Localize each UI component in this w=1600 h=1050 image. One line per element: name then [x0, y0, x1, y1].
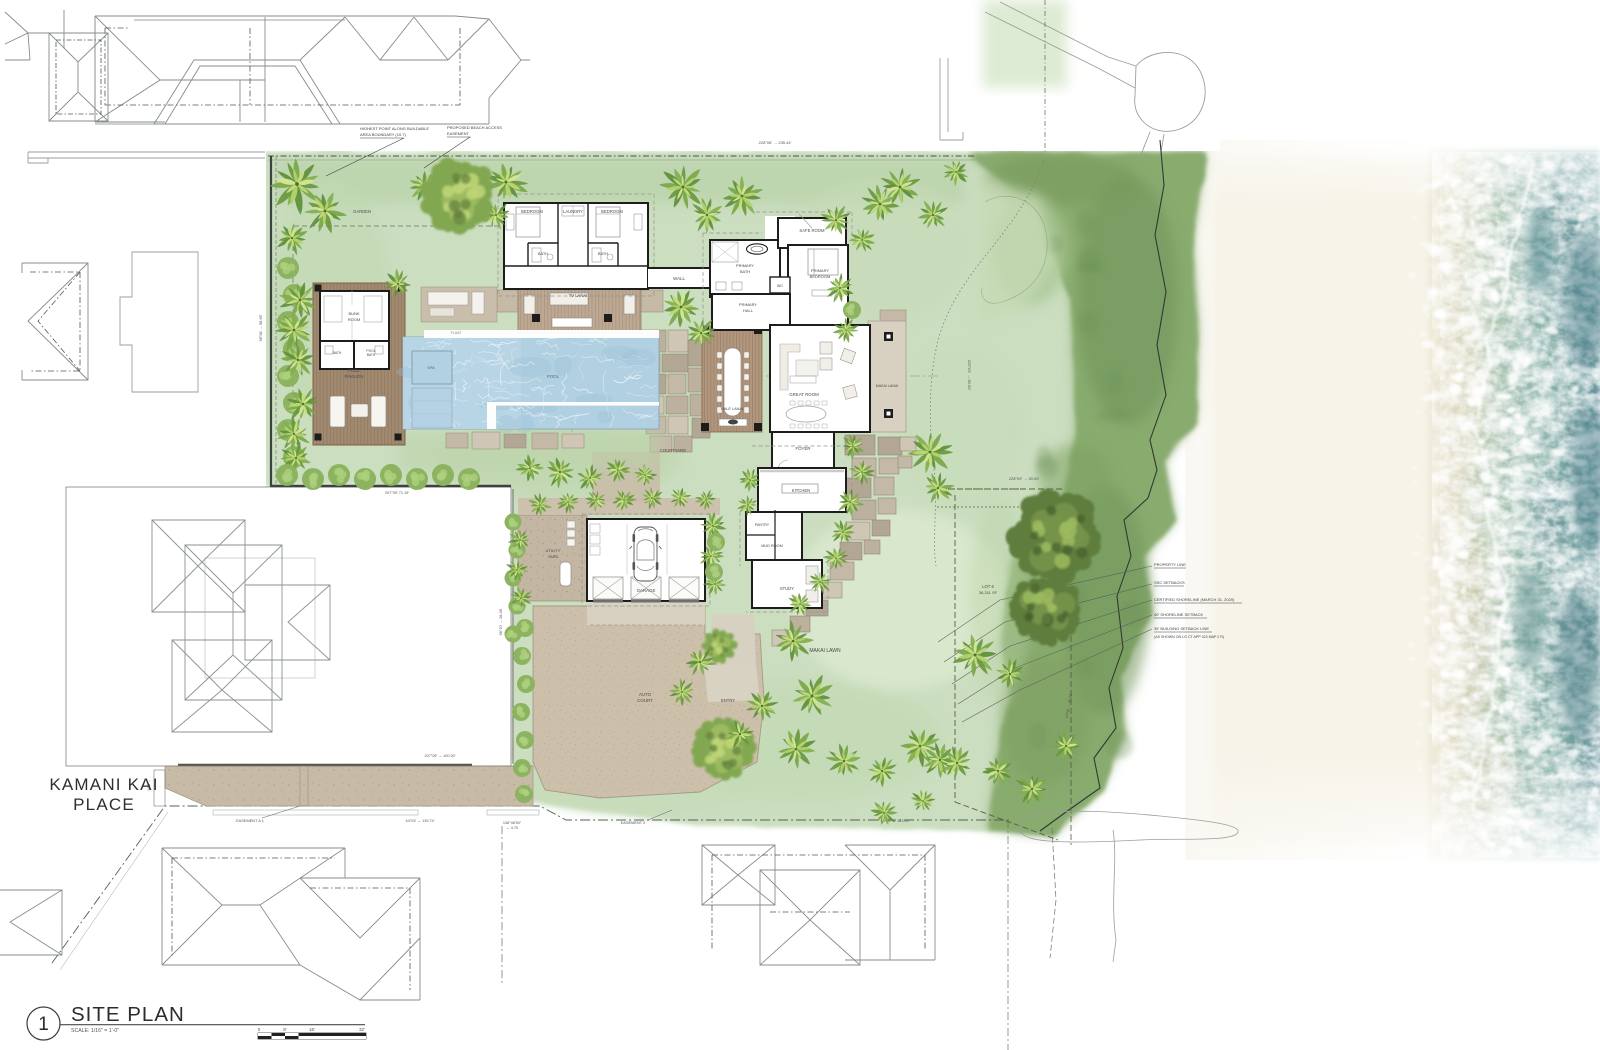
svg-text:BEDROOM: BEDROOM [601, 209, 623, 214]
svg-text:LOT 6: LOT 6 [982, 584, 994, 589]
svg-text:PRIMARY: PRIMARY [739, 302, 757, 307]
svg-text:HALE LANAI: HALE LANAI [721, 407, 743, 411]
svg-text:WALL: WALL [673, 276, 685, 281]
svg-text:SAFE ROOM: SAFE ROOM [799, 228, 825, 233]
svg-text:WC: WC [777, 284, 783, 288]
svg-text:KITCHEN: KITCHEN [792, 488, 810, 493]
svg-text:PROPERTY LINE: PROPERTY LINE [1154, 562, 1186, 567]
svg-text:GARAGE: GARAGE [637, 588, 656, 593]
svg-text:SPA: SPA [427, 365, 435, 370]
svg-text:35' BUILDING SETBACK LINE: 35' BUILDING SETBACK LINE [1154, 626, 1209, 631]
svg-text:POOL: POOL [348, 368, 360, 373]
svg-text:← 4.70: ← 4.70 [506, 826, 518, 830]
svg-text:228°08' → 235.44': 228°08' → 235.44' [759, 140, 792, 145]
svg-text:ENTRY: ENTRY [721, 698, 735, 703]
svg-text:207°09' 71.15': 207°09' 71.15' [385, 491, 409, 495]
svg-text:MAKAI LANAI: MAKAI LANAI [876, 384, 899, 388]
svg-text:COURTYARD: COURTYARD [660, 448, 686, 453]
svg-text:BEDROOM: BEDROOM [521, 209, 543, 214]
svg-text:STUDY: STUDY [780, 586, 794, 591]
svg-text:PRIMARY: PRIMARY [736, 263, 754, 268]
svg-text:8': 8' [283, 1027, 287, 1032]
svg-text:0: 0 [258, 1027, 261, 1032]
svg-text:BUNK: BUNK [348, 311, 359, 316]
svg-text:44°03' → 139.74': 44°03' → 139.74' [406, 819, 435, 823]
svg-text:EASEMENT 2: EASEMENT 2 [621, 820, 646, 825]
svg-text:UTILITY: UTILITY [546, 548, 561, 553]
svg-text:229°03' → 50.00': 229°03' → 50.00' [967, 360, 972, 391]
svg-text:56°10' → 28.48': 56°10' → 28.48' [499, 608, 503, 635]
svg-text:BATH: BATH [538, 251, 548, 256]
svg-text:ROOM: ROOM [348, 317, 360, 322]
svg-text:BATH: BATH [367, 353, 376, 357]
svg-text:CERTIFIED SHORELINE (MARCH 31,: CERTIFIED SHORELINE (MARCH 31, 2020) [1154, 597, 1235, 602]
svg-text:BATH: BATH [740, 269, 750, 274]
svg-text:PLACE: PLACE [73, 795, 135, 814]
svg-text:POOL: POOL [547, 374, 560, 379]
svg-text:40' SHORELINE SETBACK: 40' SHORELINE SETBACK [1154, 612, 1204, 617]
svg-text:SCALE: 1/16" = 1'-0": SCALE: 1/16" = 1'-0" [71, 1028, 119, 1034]
svg-text:COURT: COURT [637, 698, 653, 703]
svg-text:HALL: HALL [743, 308, 754, 313]
svg-text:36,311 SF: 36,311 SF [979, 590, 998, 595]
svg-text:PROPOSED BEACH ACCESS: PROPOSED BEACH ACCESS [447, 125, 502, 130]
svg-text:BATH: BATH [333, 351, 342, 355]
svg-text:SITE PLAN: SITE PLAN [71, 1003, 185, 1026]
svg-text:HIGHEST POINT ALONG BUILDABLE: HIGHEST POINT ALONG BUILDABLE [360, 126, 429, 131]
svg-text:FLOAT: FLOAT [451, 331, 462, 335]
svg-text:AUTO: AUTO [639, 692, 652, 697]
svg-text:SSC SETBACKS: SSC SETBACKS [1154, 580, 1185, 585]
svg-text:PAVILION: PAVILION [345, 374, 364, 379]
svg-text:(AS SHOWN ON LG CT APP 323 MAP: (AS SHOWN ON LG CT APP 323 MAP 2 R) [1154, 635, 1224, 639]
svg-text:EASEMENT: EASEMENT [447, 131, 470, 136]
svg-text:AREA BOUNDARY (10.7): AREA BOUNDARY (10.7) [360, 132, 407, 137]
svg-text:BATH: BATH [598, 251, 608, 256]
svg-text:TV LANAI: TV LANAI [569, 293, 588, 298]
svg-text:FOYER: FOYER [795, 446, 810, 451]
svg-text:56°56' → 98.65': 56°56' → 98.65' [259, 314, 263, 341]
svg-text:228°09' → 30.00': 228°09' → 30.00' [1009, 476, 1040, 481]
svg-text:PANTRY: PANTRY [755, 523, 770, 527]
svg-text:GARDEN: GARDEN [353, 209, 371, 214]
svg-text:MUD ROOM: MUD ROOM [761, 544, 783, 548]
svg-text:1: 1 [38, 1014, 49, 1035]
svg-text:MAKAI LAWN: MAKAI LAWN [809, 648, 841, 654]
svg-text:BEDROOM: BEDROOM [810, 274, 831, 279]
svg-text:16': 16' [309, 1027, 315, 1032]
svg-text:LAUNDRY: LAUNDRY [563, 209, 583, 214]
svg-text:EASEMENT A 1: EASEMENT A 1 [236, 818, 264, 823]
svg-text:YARD: YARD [548, 554, 559, 559]
svg-text:32': 32' [359, 1027, 365, 1032]
svg-text:138°46'50": 138°46'50" [503, 821, 522, 825]
svg-text:GREAT ROOM: GREAT ROOM [789, 392, 819, 397]
svg-text:PRIMARY: PRIMARY [811, 268, 829, 273]
svg-text:KAMANI KAI: KAMANI KAI [49, 775, 158, 794]
svg-text:207°09' → 100.00': 207°09' → 100.00' [424, 754, 455, 758]
